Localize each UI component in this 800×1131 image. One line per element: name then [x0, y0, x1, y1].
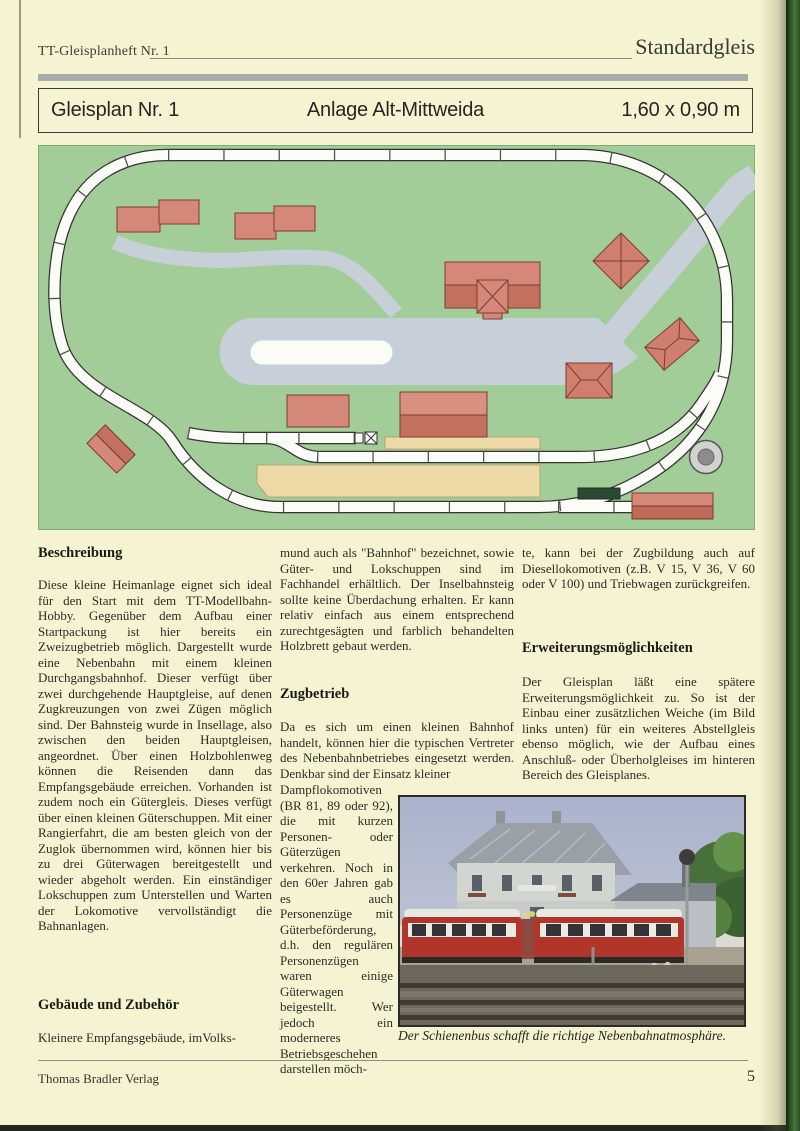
plan-dimensions: 1,60 x 0,90 m: [621, 99, 740, 122]
railbus-left: [402, 909, 522, 963]
forecourt-white-area: [250, 340, 393, 365]
magazine-page: TT-Gleisplanheft Nr. 1 Standardgleis Gle…: [0, 0, 786, 1131]
flower-box-2: [558, 893, 576, 897]
railbus-photo: [398, 795, 746, 1027]
page-edge-shadow: [758, 0, 786, 1131]
photo-scene: [400, 797, 744, 1025]
heading-erweiterung: Erweiterungsmöglichkeiten: [522, 640, 693, 657]
header-section-title: Standardgleis: [430, 34, 755, 60]
station-sign: [518, 885, 556, 891]
col1-paragraph-2: Kleinere Empfangsgebäude, imVolks-: [38, 1030, 272, 1046]
track-plan-diagram: [38, 145, 755, 530]
house-2: [159, 200, 199, 224]
heading-beschreibung: Beschreibung: [38, 545, 122, 562]
col1-paragraph-1: Diese kleine Heimanlage eignet sich idea…: [38, 577, 272, 934]
plan-title-box: Gleisplan Nr. 1 Anlage Alt-Mittweida 1,6…: [38, 88, 753, 133]
house-platform: [385, 437, 540, 449]
island-platform: [257, 465, 540, 497]
railbus-right: [534, 909, 684, 963]
buffer-stop: [355, 432, 377, 444]
col2-paragraph-2: Da es sich um einen kleinen Bahnhof hand…: [280, 719, 514, 781]
col2-paragraph-1: mund auch als "Bahnhof" bezeichnet, sowi…: [280, 545, 514, 654]
footer-page-number: 5: [700, 1068, 755, 1086]
two-tone-building: [400, 392, 487, 437]
green-shed: [578, 488, 620, 499]
page-fold-line: [19, 0, 21, 138]
house-1: [117, 207, 160, 232]
flower-box: [468, 893, 486, 897]
spine-strip: [786, 0, 800, 1131]
footer-publisher: Thomas Bradler Verlag: [38, 1071, 159, 1087]
col3-paragraph-2: Der Gleisplan läßt eine spätere Erweiter…: [522, 674, 755, 783]
hip-roof-building-small: [566, 363, 612, 398]
col2-paragraph-3: Dampflokomotiven (BR 81, 89 oder 92), di…: [280, 782, 393, 1077]
goods-shed: [287, 395, 349, 427]
house-3: [235, 213, 276, 239]
track-bed: [400, 965, 744, 1025]
photo-caption: Der Schienenbus schafft die richtige Neb…: [398, 1028, 750, 1044]
col3-paragraph-1: te, kann bei der Zugbildung auch auf Die…: [522, 545, 755, 592]
footer-rule: [38, 1060, 748, 1061]
water-tower: [690, 441, 723, 474]
heading-zugbetrieb: Zugbetrieb: [280, 686, 349, 703]
page-bottom-edge: [0, 1125, 786, 1131]
loco-shed: [632, 493, 713, 519]
house-4: [274, 206, 315, 231]
heading-gebaeude: Gebäude und Zubehör: [38, 997, 179, 1014]
header-gray-bar: [38, 74, 748, 81]
